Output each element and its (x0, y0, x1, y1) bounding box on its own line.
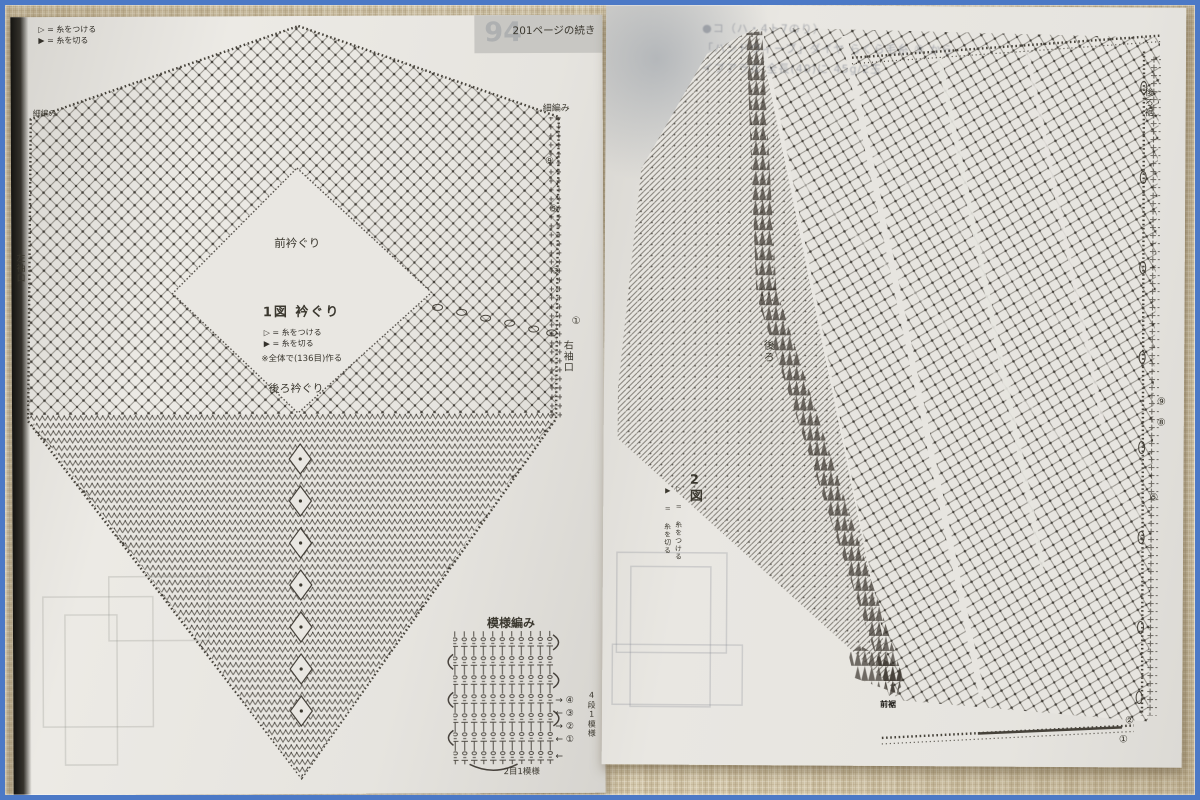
ghost-line: ●コ（ハ・4ト7のり） (702, 19, 953, 40)
figure2-title: 2図 (685, 473, 703, 503)
row-marker: ⑨ (545, 155, 554, 169)
ghost-line: 「ハンドウィーブ」ダイヤ らくら毛糸 ⑨ から (702, 39, 953, 60)
row-marker: ⑨ (1157, 396, 1166, 410)
ghost-line: イブアラル 全長(40)に 45g/2玉 (702, 58, 953, 79)
figure1-note: ※全体で(136目)作る (261, 354, 342, 366)
single-crochet-label-left: 細編み (33, 109, 57, 120)
swatch-row-marker: ← ① (555, 734, 574, 746)
swatch-title: 模様編み (487, 615, 535, 631)
back-neckline-label: 後ろ衿ぐり (268, 382, 323, 397)
swatch-row-marker: → ② (555, 721, 574, 733)
front-neckline-label: 前衿ぐり (274, 236, 320, 252)
swatch-bottom-arrow: ← (556, 751, 564, 763)
yarn-legend: ▷ = 糸をつける ▶ = 糸を切る (38, 25, 96, 47)
swatch-row-marker: → ④ (555, 695, 574, 707)
figure2-legend-attach: ▷ = 糸をつける (673, 485, 683, 561)
right-book-page: ●コ（ハ・4ト7のり） 「ハンドウィーブ」ダイヤ らくら毛糸 ⑨ から イブアラ… (602, 4, 1187, 768)
swatch-rows-label: 4段1模様 (585, 691, 596, 738)
back-label: 後ろ (760, 339, 775, 363)
swatch-row-marker: ← ③ (555, 708, 574, 720)
row-marker: ⑤ (1149, 492, 1158, 506)
figure1-crochet-chart (10, 15, 605, 796)
left-cuff-label: 左袖口 (13, 253, 25, 283)
front-hem-label: 前裾 (880, 700, 896, 711)
back-hem-label: 後ろ裾 (1142, 88, 1154, 118)
left-book-page: 94 201ページの続き ▷ = 糸をつける ▶ = 糸を切る 細編み 細編み … (10, 15, 605, 796)
single-crochet-label-right: 細編み (543, 103, 570, 115)
row-marker: ③ (551, 265, 560, 279)
figure2-crochet-chart (602, 4, 1187, 768)
row-marker: ① (1119, 733, 1128, 747)
figure2-legend-cut: ▶ = 糸を切る (662, 487, 672, 555)
photo-of-crochet-pattern-book: { "colors": { "frame_blue": "#4c79c6", "… (0, 0, 1200, 800)
row-marker: ① (572, 315, 581, 329)
figure1-legend: ▷ = 糸をつける ▶ = 糸を切る (264, 328, 322, 350)
swatch-diagram (448, 631, 559, 770)
legend-cut-yarn: ▶ = 糸を切る (38, 36, 96, 47)
ghost-showthrough (612, 552, 743, 707)
swatch-stitches-label: 2目1模様 (504, 767, 540, 779)
row-marker: ② (1125, 714, 1134, 728)
row-marker: ⑤ (549, 203, 558, 217)
continuation-note: 201ページの続き (512, 23, 595, 38)
continuation-band: 94 201ページの続き (474, 15, 602, 54)
bottom-edging (882, 724, 1134, 746)
figure1-legend-attach: ▷ = 糸をつける (264, 328, 322, 339)
row-marker: ⑧ (1157, 417, 1166, 431)
figure1-legend-cut: ▶ = 糸を切る (264, 339, 322, 350)
right-cuff-label: 右袖口 (560, 340, 574, 373)
ghost-header-text: ●コ（ハ・4ト7のり） 「ハンドウィーブ」ダイヤ らくら毛糸 ⑨ から イブアラ… (702, 19, 954, 80)
legend-attach-yarn: ▷ = 糸をつける (38, 25, 96, 36)
figure1-title: 1図 衿ぐり (263, 304, 341, 322)
